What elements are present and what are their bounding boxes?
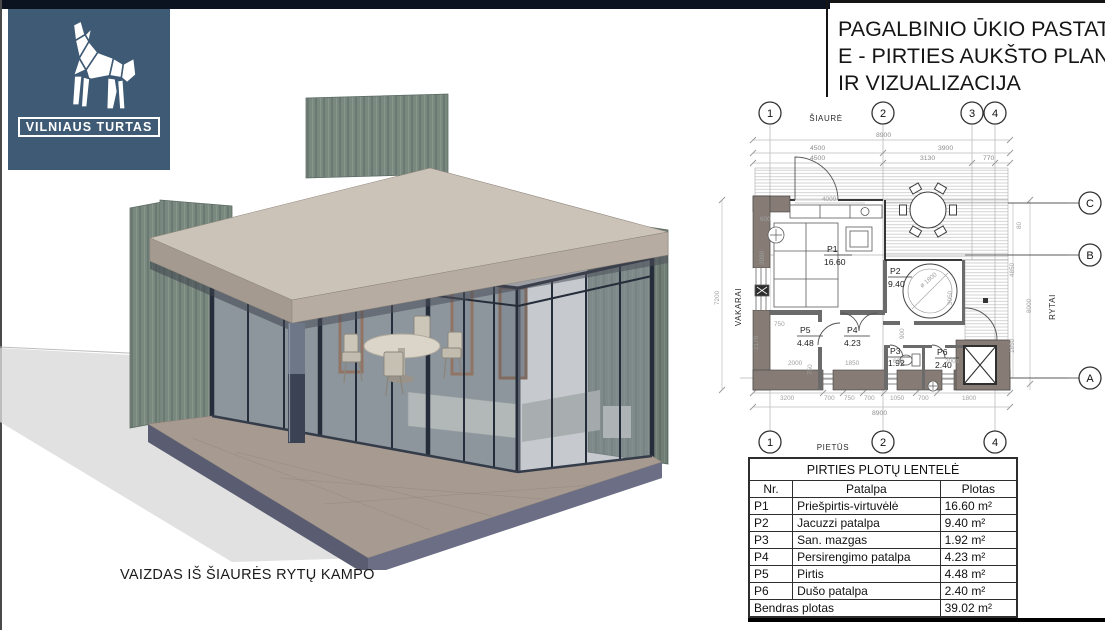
svg-text:700: 700 [918,395,929,402]
table-row: P4 Persirengimo patalpa 4.23 m² [749,549,1017,566]
room-p1-area: 16.60 [824,257,846,267]
svg-text:3980: 3980 [759,250,766,265]
sheet-bottom-border [748,618,1105,622]
svg-text:750: 750 [774,321,785,328]
rear-parapet-wall [306,94,448,178]
svg-text:750: 750 [807,364,814,375]
svg-text:700: 700 [824,395,835,402]
room-p6-id: P6 [937,347,948,357]
toilet-tank [912,354,920,366]
room-p3-id: P3 [890,346,901,356]
compass-north: ŠIAURĖ [809,114,842,123]
title-line-3: IR VIZUALIZACIJA [838,70,1105,97]
svg-text:8900: 8900 [872,410,887,417]
title-divider-line [826,0,828,97]
room-p2-id: P2 [890,266,901,276]
corner-column [288,323,305,443]
compass-west: VAKARAI [734,288,743,326]
building-3d-visualization [0,90,720,570]
svg-text:1050: 1050 [890,395,905,402]
svg-text:1800: 1800 [962,395,977,402]
table-row: P1 Priešpirtis-virtuvėlė 16.60 m² [749,498,1017,515]
svg-text:3200: 3200 [780,395,795,402]
room-p4-area: 4.23 [844,338,861,348]
room-p1-id: P1 [827,244,838,254]
svg-text:2000: 2000 [945,358,960,365]
svg-text:900: 900 [899,328,906,339]
glass-wall-east [518,258,652,474]
floor-plan: P1 16.60 P2 9.40 P3 1.92 P4 4.23 P5 4.48… [700,95,1105,463]
title-line-1: PAGALBINIO ŪKIO PASTATO [838,16,1105,43]
svg-text:2: 2 [880,437,886,449]
svg-text:1: 1 [767,437,773,449]
col-header-area: Plotas [940,481,1017,498]
svg-text:7200: 7200 [714,290,721,305]
svg-text:8000: 8000 [1026,298,1033,313]
sheet-top-bar [0,0,830,9]
room-p5-area: 4.48 [797,338,814,348]
table-row: P6 Dušo patalpa 2.40 m² [749,583,1017,600]
svg-text:C: C [1086,198,1094,210]
svg-text:3900: 3900 [938,145,953,152]
compass-east: RYTAI [1048,294,1057,320]
svg-text:4: 4 [992,437,998,449]
svg-text:770: 770 [983,155,995,162]
svg-text:2: 2 [880,108,886,120]
total-area-label: Bendras plotas [749,600,940,618]
svg-text:80: 80 [1016,221,1023,229]
svg-text:4500: 4500 [810,155,825,162]
col-header-nr: Nr. [749,481,793,498]
svg-text:4850: 4850 [1009,262,1016,277]
svg-text:B: B [1086,250,1093,262]
drawing-sheet: { "page": { "background": "#ffffff", "to… [0,0,1105,630]
svg-text:750: 750 [844,395,855,402]
svg-text:4000: 4000 [822,196,837,203]
svg-text:3: 3 [969,108,975,120]
svg-text:8900: 8900 [876,132,891,139]
table-row: P2 Jacuzzi patalpa 9.40 m² [749,515,1017,532]
visualization-caption: VAIZDAS IŠ ŠIAURĖS RYTŲ KAMPO [120,567,375,583]
table-row: P3 San. mazgas 1.92 m² [749,532,1017,549]
room-p2-area: 9.40 [888,279,905,289]
room-areas-table: PIRTIES PLOTŲ LENTELĖ Nr. Patalpa Plotas… [748,457,1018,618]
table-header-row: Nr. Patalpa Plotas [749,481,1017,498]
room-p4-id: P4 [847,325,858,335]
title-line-2: E - PIRTIES AUKŠTO PLANAS [838,43,1105,70]
svg-text:700: 700 [864,395,875,402]
svg-text:600: 600 [760,216,771,223]
svg-text:4500: 4500 [810,145,825,152]
svg-text:A: A [1086,373,1094,385]
table-footer-row: Bendras plotas 39.02 m² [749,600,1017,618]
svg-text:3050: 3050 [947,290,954,305]
table-row: P5 Pirtis 4.48 m² [749,566,1017,583]
svg-text:3130: 3130 [920,155,935,162]
room-p5-id: P5 [800,325,811,335]
sheet-title: PAGALBINIO ŪKIO PASTATO E - PIRTIES AUKŠ… [838,16,1105,97]
compass-south: PIETŪS [817,443,850,452]
svg-text:1850: 1850 [1009,338,1016,353]
svg-text:2170: 2170 [753,335,760,350]
svg-text:4: 4 [992,108,998,120]
svg-text:1850: 1850 [845,360,860,367]
svg-text:600: 600 [893,358,904,365]
svg-text:1: 1 [767,108,773,120]
col-header-room: Patalpa [793,481,941,498]
svg-text:2000: 2000 [788,360,803,367]
table-title: PIRTIES PLOTŲ LENTELĖ [749,458,1017,481]
total-area-value: 39.02 m² [940,600,1017,618]
